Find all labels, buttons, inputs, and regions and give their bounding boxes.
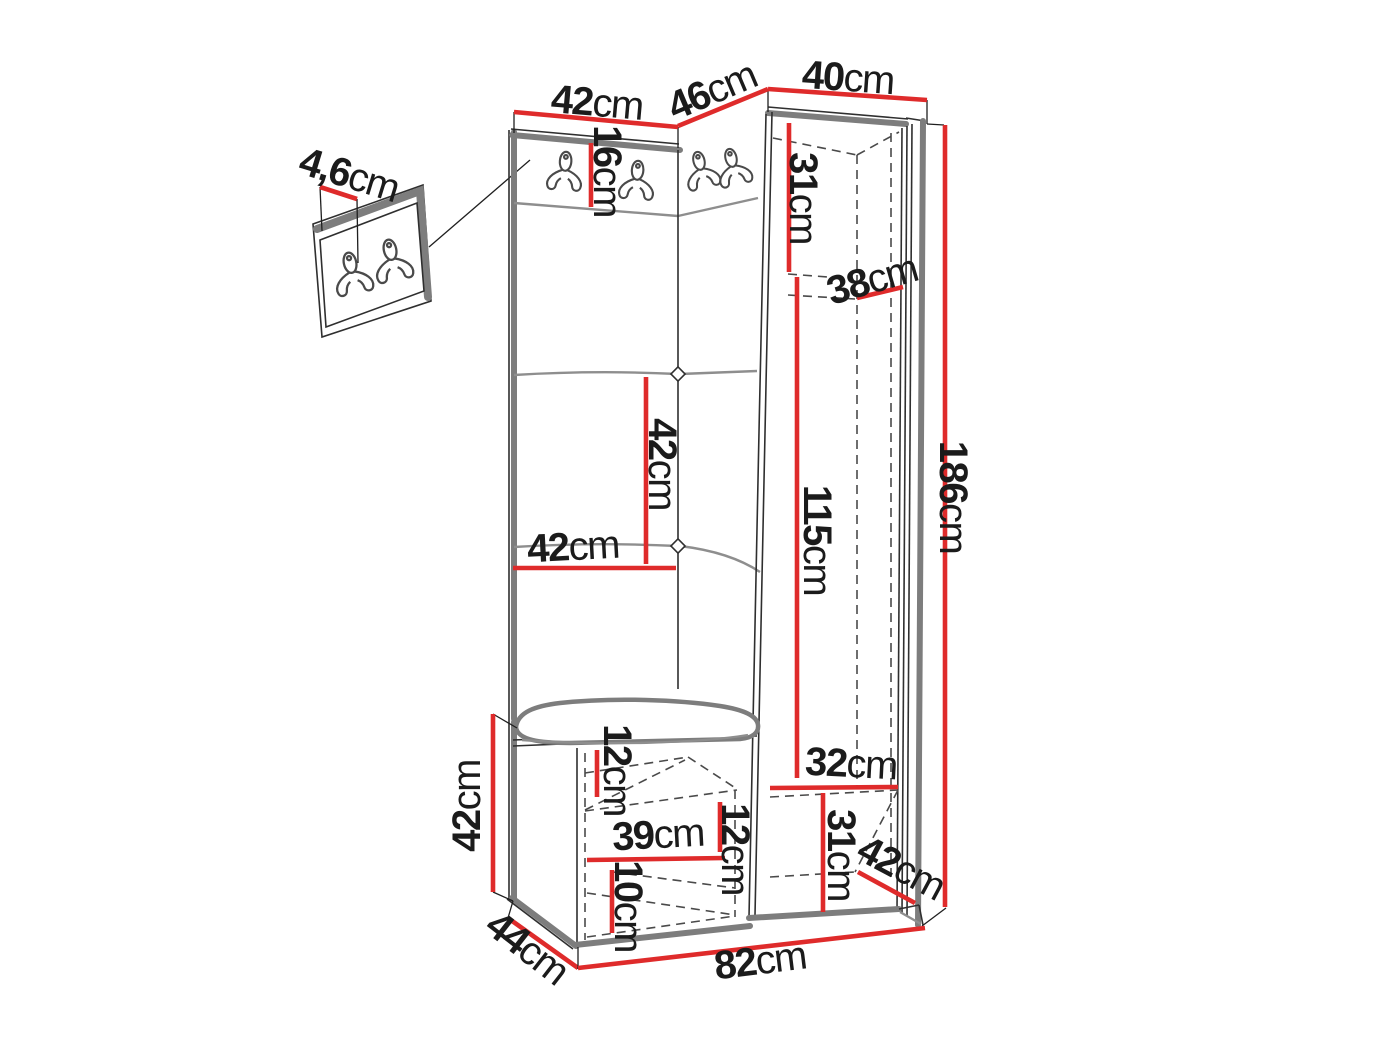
dim-left-panel-width-top: 42cm xyxy=(549,77,644,129)
dim-wall-panel-thickness: 4,6cm xyxy=(294,139,404,211)
left-panel xyxy=(509,129,760,721)
dim-wardrobe-bottom-width: 32cm xyxy=(804,740,898,789)
dim-wardrobe-top-compartment-height: 31cm xyxy=(781,152,825,244)
dim-bench-shelf-width: 39cm xyxy=(611,811,705,860)
dim-wardrobe-width: 40cm xyxy=(801,53,896,103)
diagram-canvas: 4,6cm 42cm 46cm 40cm 16cm 31cm 38cm 186c… xyxy=(0,0,1384,1038)
upholstery-button xyxy=(671,539,685,553)
dim-hanging-space-height: 115cm xyxy=(795,485,839,595)
upholstery-button xyxy=(671,367,685,381)
dim-corner-section-width: 46cm xyxy=(661,53,763,129)
dim-bench-top-clearance: 12cm xyxy=(595,724,639,816)
dim-bench-shelf-spacing: 12cm xyxy=(713,803,757,895)
dim-bench-base-height: 10cm xyxy=(606,860,650,952)
dim-panel-width: 42cm xyxy=(526,523,620,572)
coat-hook-icon xyxy=(547,151,584,192)
coat-hook-icon xyxy=(681,148,721,191)
dim-panel-tile-height: 42cm xyxy=(640,418,684,510)
dim-bench-depth: 44cm xyxy=(477,902,576,993)
dimension-labels: 4,6cm 42cm 46cm 40cm 16cm 31cm 38cm 186c… xyxy=(294,53,975,994)
dim-total-height: 186cm xyxy=(931,441,975,554)
furniture-dimension-diagram: 4,6cm 42cm 46cm 40cm 16cm 31cm 38cm 186c… xyxy=(0,0,1384,1038)
dim-wardrobe-shelf-depth: 38cm xyxy=(822,246,922,314)
wall-hook-panel xyxy=(313,185,431,337)
dim-bench-height: 42cm xyxy=(445,760,489,852)
dim-total-width: 82cm xyxy=(712,934,809,989)
dim-hook-strip-height: 16cm xyxy=(585,125,629,217)
